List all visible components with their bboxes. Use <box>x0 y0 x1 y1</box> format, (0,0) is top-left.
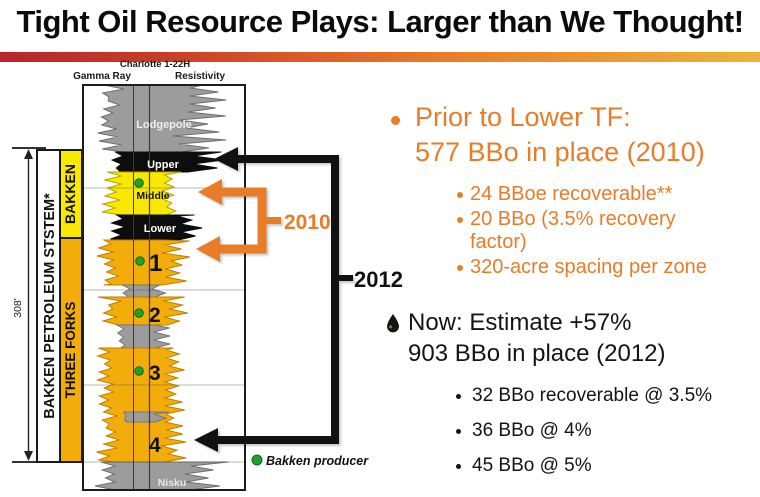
zone-label-tf4: 4 <box>149 434 161 457</box>
bullet-icon <box>456 394 461 399</box>
now-sub-1: 32 BBo recoverable @ 3.5% <box>472 386 712 407</box>
bullet-icon <box>456 429 461 434</box>
zone-label-tf1: 1 <box>149 250 162 277</box>
producer-dot-icon <box>135 309 144 318</box>
legend-bakken-producer: Bakken producer <box>252 454 369 468</box>
zone-label-upper: Upper <box>147 159 180 171</box>
producer-dot-icon <box>136 257 145 266</box>
zone-label-tf2: 2 <box>149 304 161 327</box>
now-sub-3: 45 BBo @ 5% <box>472 456 592 477</box>
zone-shape <box>117 325 170 348</box>
zone-label-middle: Middle <box>136 190 169 202</box>
callout-2010-label: 2010 <box>284 211 331 234</box>
well-log-diagram: Charlotte 1-22H Gamma Ray Resistivity 30… <box>0 56 412 497</box>
zone-label-lower: Lower <box>144 223 177 235</box>
legend-label: Bakken producer <box>266 454 369 468</box>
producer-dot-icon <box>135 367 144 376</box>
callout-2012-label: 2012 <box>354 267 403 292</box>
slide: Tight Oil Resource Plays: Larger than We… <box>0 0 760 497</box>
bullet-icon <box>457 217 463 223</box>
three-forks-strip-label: THREE FORKS <box>63 302 78 399</box>
producer-dot-icon <box>135 179 144 188</box>
slide-title: Tight Oil Resource Plays: Larger than We… <box>0 4 760 40</box>
gamma-ray-label: Gamma Ray <box>73 71 131 82</box>
arrow-down-icon <box>24 451 33 461</box>
now-heading-line1: Now: Estimate +57% <box>408 310 631 336</box>
zone-label-lodgepole: Lodgepole <box>136 119 192 131</box>
prior-sub-1: 24 BBoe recoverable** <box>470 183 672 206</box>
producer-dot-icon <box>252 455 262 465</box>
zone-label-tf3: 3 <box>149 362 161 385</box>
depth-span-label: 308' <box>12 298 24 318</box>
well-name-label: Charlotte 1-22H <box>120 59 190 70</box>
now-sub-2: 36 BBo @ 4% <box>472 421 592 442</box>
bakken-strip-label: BAKKEN <box>62 164 78 224</box>
zone-label-nisku: Nisku <box>158 477 187 489</box>
arrow-up-icon <box>24 149 33 159</box>
prior-heading-line2: 577 BBo in place (2010) <box>415 138 705 168</box>
bullet-icon <box>457 265 463 271</box>
prior-sub-2: 20 BBo (3.5% recovery factor) <box>470 208 695 254</box>
bullet-icon <box>456 464 461 469</box>
prior-heading-line1: Prior to Lower TF: <box>415 103 631 133</box>
resistivity-label: Resistivity <box>175 71 225 82</box>
system-strip-label: BAKKEN PETROLEUM STSTEM* <box>42 193 58 419</box>
bullet-icon <box>457 192 463 198</box>
now-heading-line2: 903 BBo in place (2012) <box>408 341 666 367</box>
prior-sub-3: 320-acre spacing per zone <box>470 256 707 279</box>
